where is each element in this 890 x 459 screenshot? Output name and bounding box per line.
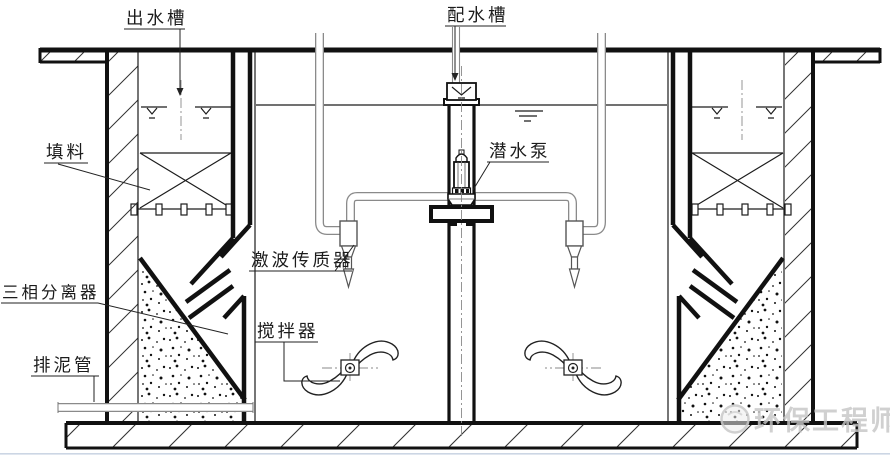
packing-zone-left: [131, 153, 232, 215]
label-distribution-trough: 配水槽: [445, 6, 509, 81]
air-intake-pipe-left: [320, 33, 341, 231]
label-sludge-discharge-pipe: 排泥管: [31, 356, 99, 402]
svg-text:环保工程师: 环保工程师: [754, 406, 890, 437]
air-intake-pipe-right: [583, 33, 602, 231]
bottom-border-line: [0, 453, 890, 455]
svg-text:配水槽: 配水槽: [447, 6, 509, 26]
agitator-left: [302, 341, 398, 395]
svg-text:排泥管: 排泥管: [33, 356, 95, 376]
packing-zone-right: [690, 153, 791, 215]
svg-text:潜水泵: 潜水泵: [489, 142, 551, 162]
label-agitator: 搅拌器: [255, 322, 340, 381]
mass-transfer-device-right: [566, 221, 583, 287]
agitator-right: [525, 341, 621, 395]
svg-text:填料: 填料: [46, 143, 87, 163]
diagram-canvas: 出水槽 配水槽 填料 潜水泵 激波传质器 三相分离器 搅拌器: [0, 0, 890, 459]
watermark-logo-icon: [722, 406, 749, 433]
svg-text:出水槽: 出水槽: [126, 9, 188, 29]
svg-text:激波传质器: 激波传质器: [251, 251, 354, 271]
svg-text:搅拌器: 搅拌器: [257, 322, 319, 342]
label-shock-wave-mass-transfer: 激波传质器: [249, 245, 354, 271]
svg-text:三相分离器: 三相分离器: [2, 283, 100, 302]
process-diagram: 出水槽 配水槽 填料 潜水泵 激波传质器 三相分离器 搅拌器: [0, 0, 890, 459]
label-submersible-pump: 潜水泵: [473, 142, 551, 190]
sludge-discharge-pipe: [58, 402, 253, 413]
